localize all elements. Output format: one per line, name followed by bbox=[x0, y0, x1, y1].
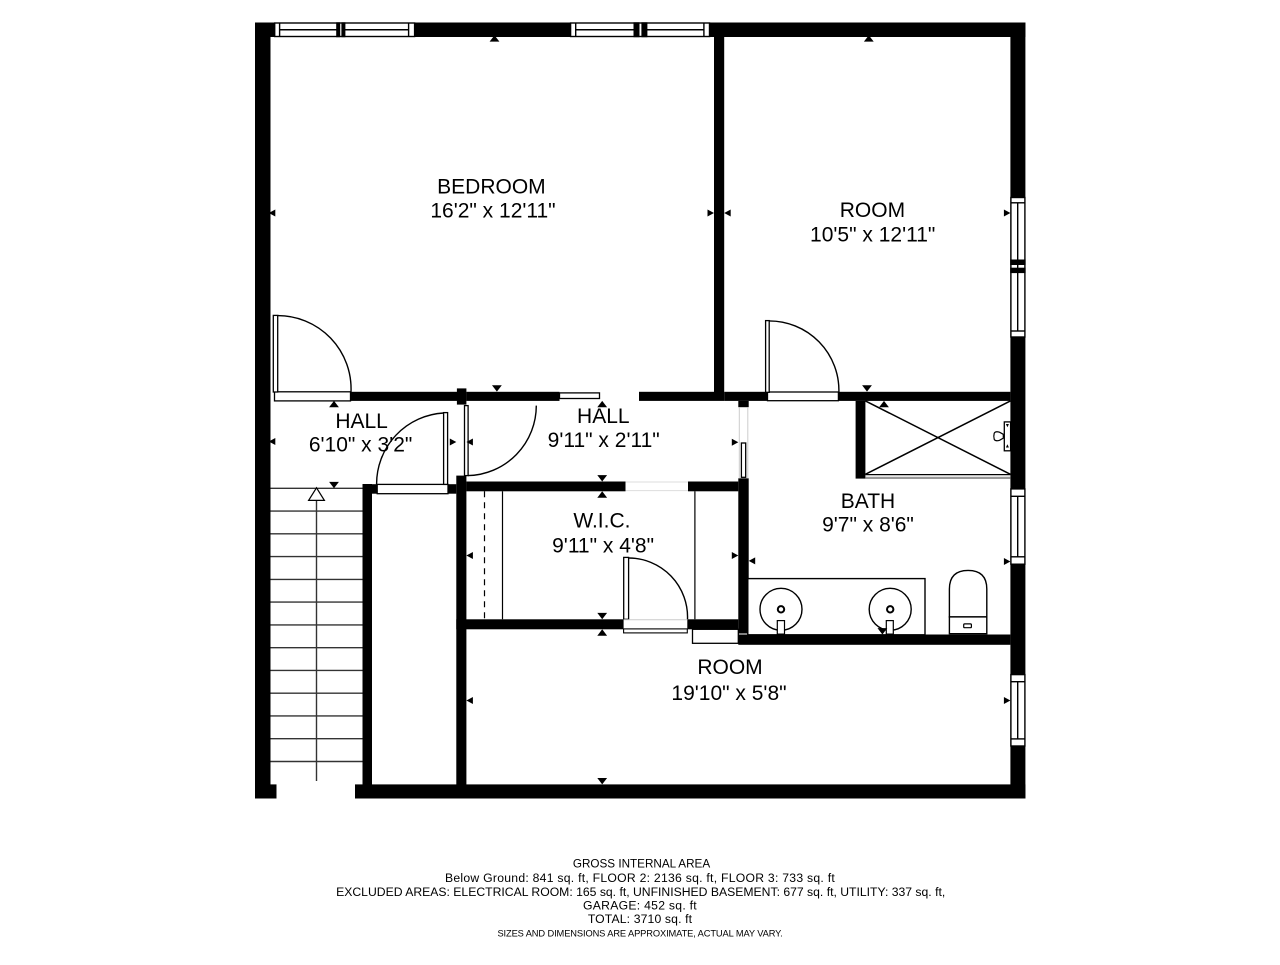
svg-text:HALL: HALL bbox=[335, 410, 388, 433]
svg-text:16'2" x 12'11": 16'2" x 12'11" bbox=[430, 200, 555, 223]
svg-text:W.I.C.: W.I.C. bbox=[573, 510, 630, 533]
svg-text:TOTAL: 3710 sq. ft: TOTAL: 3710 sq. ft bbox=[588, 912, 693, 926]
svg-text:ROOM: ROOM bbox=[840, 199, 905, 222]
svg-text:19'10" x 5'8": 19'10" x 5'8" bbox=[671, 682, 786, 705]
svg-text:BEDROOM: BEDROOM bbox=[437, 175, 546, 198]
svg-text:9'11" x 2'11": 9'11" x 2'11" bbox=[548, 429, 660, 452]
svg-text:6'10" x 3'2": 6'10" x 3'2" bbox=[309, 434, 413, 457]
svg-text:GROSS INTERNAL AREA: GROSS INTERNAL AREA bbox=[573, 858, 710, 871]
svg-text:Below Ground: 841 sq. ft, FLOO: Below Ground: 841 sq. ft, FLOOR 2: 2136 … bbox=[445, 871, 835, 885]
svg-text:9'7" x 8'6": 9'7" x 8'6" bbox=[822, 514, 914, 537]
svg-text:EXCLUDED AREAS: ELECTRICAL ROO: EXCLUDED AREAS: ELECTRICAL ROOM: 165 sq.… bbox=[336, 885, 945, 899]
svg-text:ROOM: ROOM bbox=[697, 656, 762, 679]
svg-text:SIZES AND DIMENSIONS ARE APPRO: SIZES AND DIMENSIONS ARE APPROXIMATE, AC… bbox=[497, 929, 782, 939]
svg-text:10'5" x 12'11": 10'5" x 12'11" bbox=[810, 224, 935, 247]
svg-text:BATH: BATH bbox=[841, 490, 895, 513]
svg-text:GARAGE: 452 sq. ft: GARAGE: 452 sq. ft bbox=[583, 898, 697, 912]
svg-text:9'11" x 4'8": 9'11" x 4'8" bbox=[552, 535, 654, 558]
svg-text:HALL: HALL bbox=[577, 405, 630, 428]
